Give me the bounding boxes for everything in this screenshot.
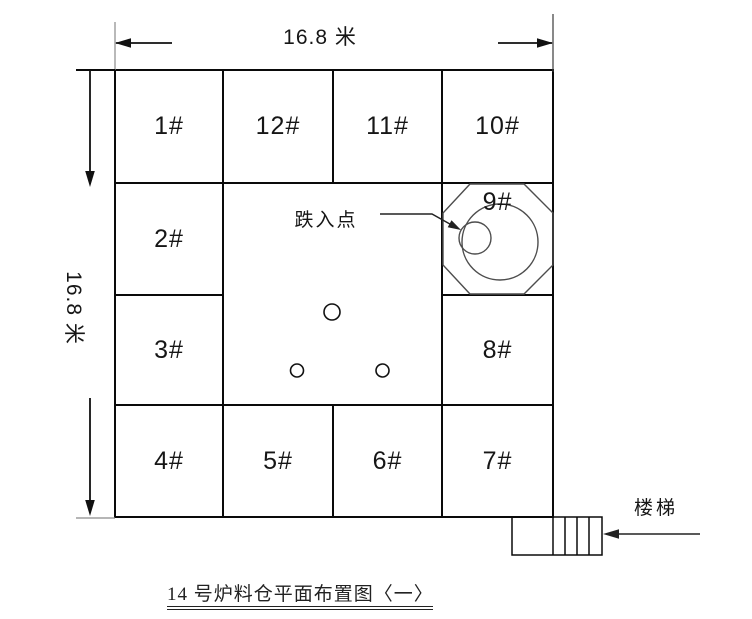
drawing-caption: 14 号炉料仓平面布置图〈一〉 — [167, 580, 433, 610]
stairs-leader — [603, 529, 700, 539]
bin-6-label: 6# — [333, 405, 442, 517]
left-dim-arrowhead-upper-icon — [85, 171, 95, 187]
bin-3-label: 3# — [115, 295, 223, 405]
bin-10-label: 10# — [442, 70, 553, 183]
furnace-silo-plan-diagram: 16.8 米 16.8 米 1# 12# 11# 10# 2# 9# 3# 8#… — [0, 0, 752, 619]
bin-1-label: 1# — [115, 70, 223, 183]
floor-opening-left — [291, 364, 304, 377]
bin-11-label: 11# — [333, 70, 442, 183]
drop-point-arrowhead-icon — [448, 220, 461, 230]
bin-9-label: 9# — [442, 186, 553, 218]
top-dim-arrowhead-right-icon — [537, 38, 553, 48]
staircase — [512, 517, 602, 555]
bin-12-label: 12# — [223, 70, 333, 183]
bin-5-label: 5# — [223, 405, 333, 517]
floor-opening-right — [376, 364, 389, 377]
bin-8-label: 8# — [442, 295, 553, 405]
bin-4-label: 4# — [115, 405, 223, 517]
top-dimension-label: 16.8 米 — [260, 24, 380, 48]
bin-7-label: 7# — [442, 405, 553, 517]
stairs-label: 楼梯 — [626, 495, 686, 517]
floor-opening-top — [324, 304, 340, 320]
top-dim-arrowhead-left-icon — [115, 38, 131, 48]
floor-openings — [291, 304, 390, 377]
drop-point-label: 跌入点 — [290, 206, 362, 230]
left-dim-arrowhead-lower-icon — [85, 500, 95, 516]
bin-2-label: 2# — [115, 183, 223, 295]
hopper-drop-circle — [459, 222, 491, 254]
left-dimension-label: 16.8 米 — [62, 253, 88, 363]
stairs-arrowhead-icon — [603, 529, 619, 539]
